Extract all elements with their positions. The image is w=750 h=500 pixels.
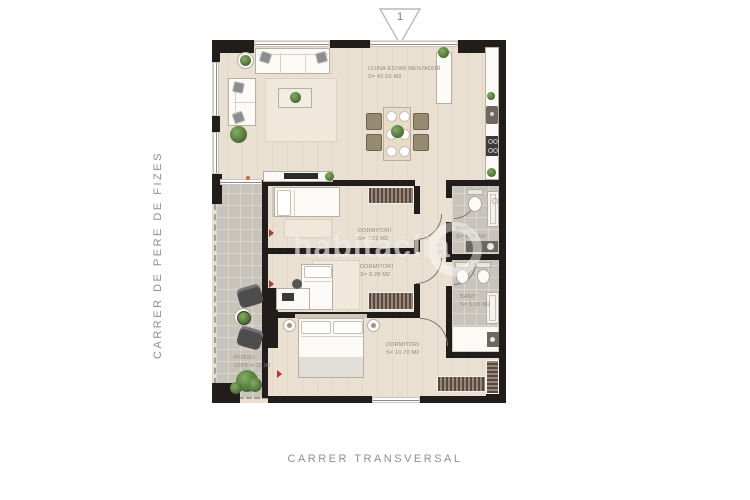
room-label-bedroom2: DORMITORIS= 9.28 m2 xyxy=(360,264,393,279)
room-label-porch: PORXO100% = 10.00 xyxy=(234,355,271,370)
tv-icon xyxy=(284,173,318,179)
wall-segment xyxy=(262,248,416,254)
plant-icon xyxy=(438,47,449,58)
wall-segment xyxy=(446,352,506,358)
street-label-bottom: CARRER TRANSVERSAL xyxy=(0,453,750,465)
opening-marker-icon xyxy=(269,280,274,288)
vanity xyxy=(466,241,498,252)
wall-segment xyxy=(414,186,420,214)
bedroom-rug xyxy=(284,219,332,238)
sink-icon xyxy=(487,332,499,347)
toilet-icon xyxy=(456,269,469,284)
toilet-icon xyxy=(468,196,482,212)
plant-icon xyxy=(487,92,495,100)
wall-segment xyxy=(446,254,506,260)
room-label-living: CUINA ESTAR MENJADORS= 43.50 m2 xyxy=(368,66,441,81)
plant-icon xyxy=(230,126,247,143)
lamp-icon xyxy=(287,323,292,328)
room-label-bath2: BANYS= 5.00 m2 xyxy=(460,294,490,309)
window xyxy=(372,397,420,403)
plate-icon xyxy=(399,146,410,157)
wall-segment xyxy=(446,186,452,198)
room-label-bath1: BANYS= 4.35 m2 xyxy=(456,226,486,241)
window xyxy=(370,41,458,47)
opening-marker-icon xyxy=(277,370,282,378)
floor-plan-page: 1 CARRER DE PERE DE FIZES CARRER TRANSVE… xyxy=(0,0,750,500)
wall-segment xyxy=(446,180,506,186)
plant-icon xyxy=(240,55,251,66)
room-label-bedroom1: DORMITORIS= 7.72 m2 xyxy=(358,228,391,243)
window xyxy=(213,132,219,174)
plate-icon xyxy=(386,146,397,157)
plate-icon xyxy=(399,111,410,122)
wall-segment xyxy=(330,40,370,48)
cushion xyxy=(232,81,245,94)
pillow xyxy=(333,321,363,334)
plant-icon xyxy=(248,378,262,392)
window xyxy=(254,41,330,47)
wardrobe-icon xyxy=(368,292,414,310)
decor-dot xyxy=(246,176,250,180)
wall-segment xyxy=(212,116,220,132)
wall-segment xyxy=(499,40,506,403)
stove-icon xyxy=(486,136,498,156)
shower-icon xyxy=(487,191,499,227)
sink-icon xyxy=(487,243,494,250)
dining-chair xyxy=(413,134,429,151)
wardrobe-icon xyxy=(437,376,486,392)
plant-icon xyxy=(237,311,251,325)
bidet-tank xyxy=(476,262,491,268)
laptop-icon xyxy=(282,293,294,301)
stool xyxy=(292,279,302,289)
wall-segment xyxy=(268,396,372,403)
toilet-tank xyxy=(467,189,483,195)
wardrobe-icon xyxy=(486,360,499,394)
pillow xyxy=(304,266,332,278)
bidet-icon xyxy=(477,269,490,284)
dining-chair xyxy=(366,134,382,151)
wall-segment xyxy=(414,240,420,252)
wall-segment xyxy=(212,40,220,62)
opening-marker-icon xyxy=(269,229,274,237)
plant-icon xyxy=(325,172,334,181)
facade-number: 1 xyxy=(390,11,410,23)
plant-icon xyxy=(290,92,301,103)
wall-segment xyxy=(446,222,452,262)
glass-door xyxy=(220,179,262,185)
toilet-tank xyxy=(455,262,470,268)
dining-chair xyxy=(413,113,429,130)
plant-icon xyxy=(230,382,242,394)
sink-icon xyxy=(486,106,498,124)
terrace-edge xyxy=(214,204,216,384)
plant-icon xyxy=(487,168,496,177)
plate-icon xyxy=(386,111,397,122)
window xyxy=(213,62,219,116)
pillow xyxy=(301,321,331,334)
lamp-icon xyxy=(371,323,376,328)
dining-chair xyxy=(366,113,382,130)
pillow xyxy=(277,190,291,216)
street-label-left: CARRER DE PERE DE FIZES xyxy=(152,105,164,405)
plant-icon xyxy=(391,125,404,138)
room-label-bedroom3: DORMITORIS= 10.70 m2 xyxy=(386,342,420,357)
wardrobe-icon xyxy=(368,187,414,204)
